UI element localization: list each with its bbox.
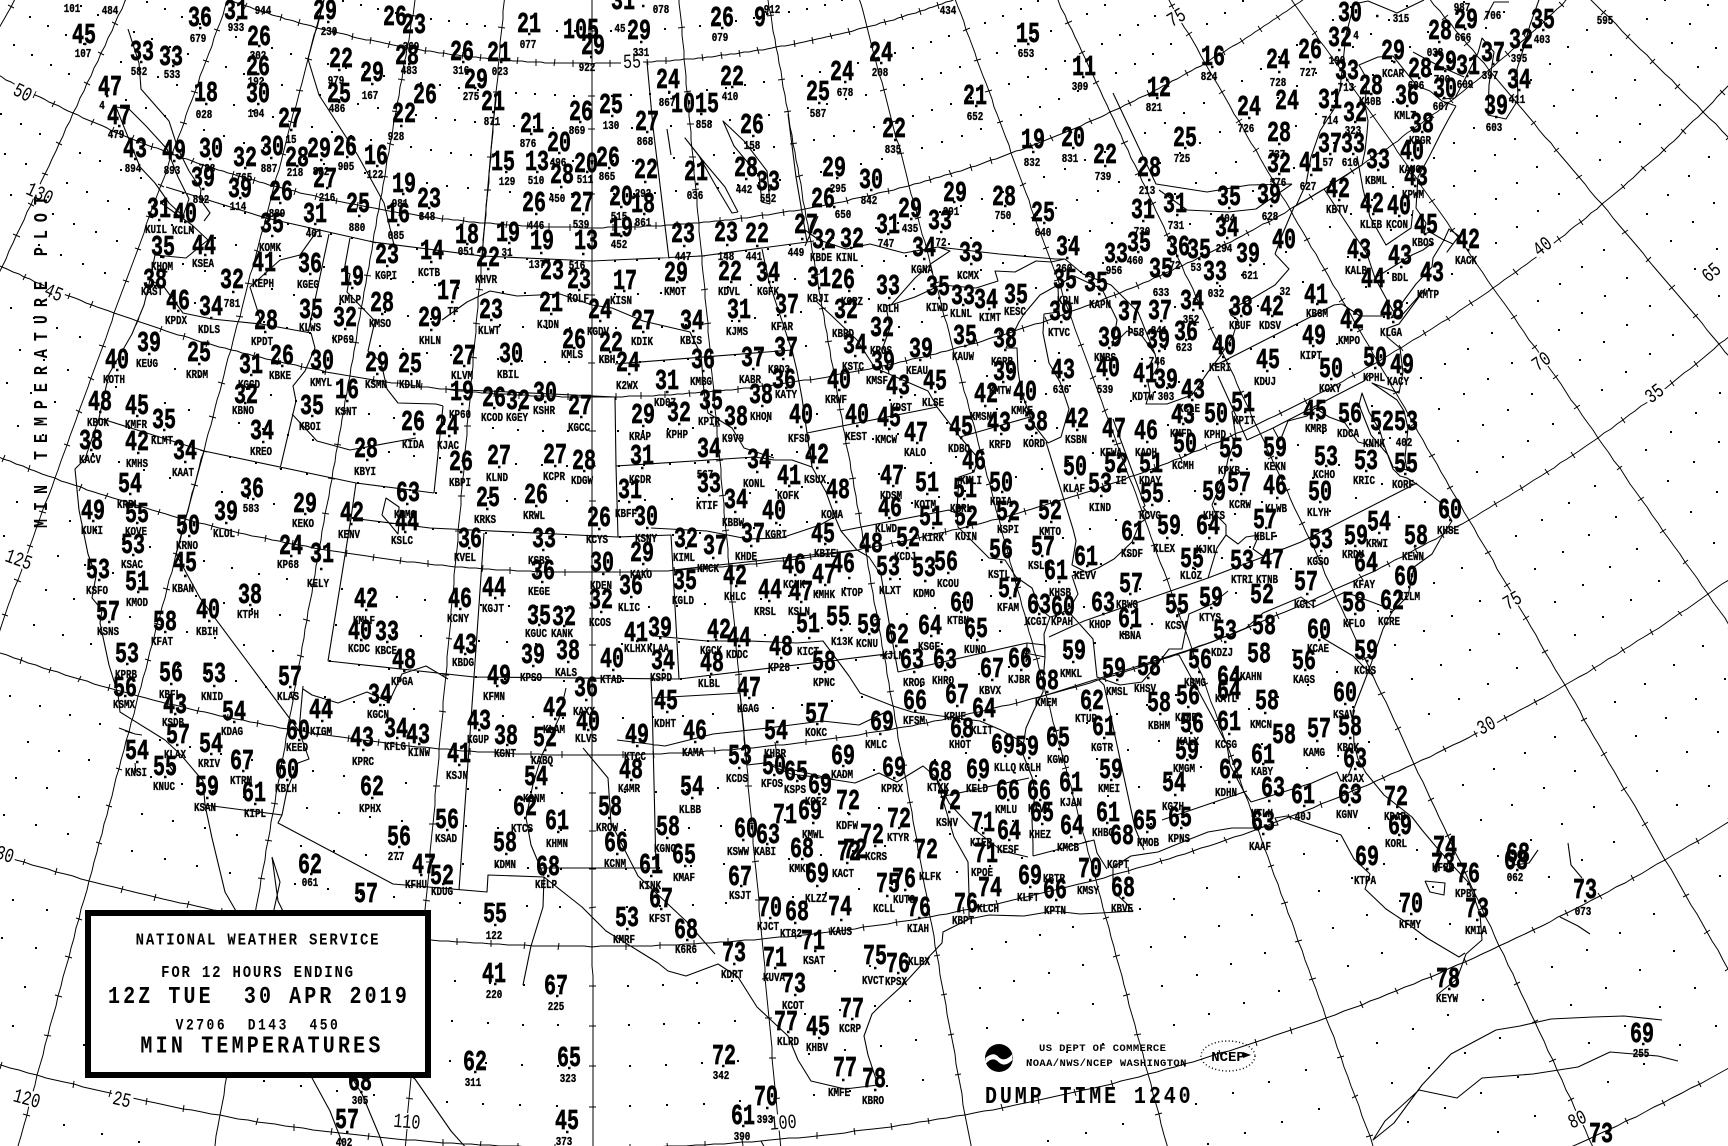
svg-text:59: 59	[1015, 732, 1039, 765]
svg-text:KMFR: KMFR	[125, 419, 148, 432]
svg-text:KVEL: KVEL	[454, 552, 476, 565]
svg-text:KTOP: KTOP	[841, 587, 863, 600]
svg-text:KGNC: KGNC	[654, 843, 677, 856]
svg-text:KIRK: KIRK	[922, 532, 945, 545]
svg-text:45: 45	[654, 686, 678, 719]
svg-text:KBPI: KBPI	[449, 477, 471, 490]
svg-text:KBNA: KBNA	[1119, 630, 1142, 643]
svg-text:KATY: KATY	[775, 389, 798, 402]
svg-text:44: 44	[482, 573, 506, 606]
svg-text:US DEPT OF COMMERCE: US DEPT OF COMMERCE	[1039, 1043, 1166, 1055]
svg-text:KMHK: KMHK	[813, 589, 836, 602]
svg-text:KMLS: KMLS	[561, 349, 584, 362]
svg-text:KHBR: KHBR	[764, 748, 787, 761]
svg-text:KORF: KORF	[1392, 479, 1414, 492]
svg-text:KBML: KBML	[1365, 175, 1387, 188]
svg-text:53: 53	[1309, 525, 1333, 558]
svg-text:441: 441	[746, 251, 763, 264]
svg-text:KLWD: KLWD	[875, 523, 897, 536]
svg-text:KDIK: KDIK	[631, 336, 654, 349]
svg-text:369: 369	[403, 41, 420, 54]
svg-text:DUMP TIME 1240: DUMP TIME 1240	[985, 1083, 1194, 1110]
svg-text:77: 77	[840, 994, 864, 1027]
svg-text:42: 42	[340, 498, 364, 531]
svg-text:16: 16	[1201, 42, 1225, 75]
svg-text:KGNT: KGNT	[494, 748, 517, 761]
svg-text:122: 122	[367, 169, 384, 182]
svg-text:49: 49	[1302, 321, 1326, 354]
svg-text:868: 868	[637, 136, 654, 149]
svg-text:KPIR: KPIR	[698, 416, 721, 429]
svg-text:53: 53	[1394, 407, 1418, 440]
svg-text:KSAT: KSAT	[803, 955, 826, 968]
svg-text:KUTS: KUTS	[893, 894, 916, 907]
svg-text:KCLM: KCLM	[172, 225, 194, 238]
svg-text:KGDV: KGDV	[587, 326, 610, 339]
svg-text:730: 730	[1134, 226, 1151, 239]
svg-text:KALX: KALX	[1177, 736, 1200, 749]
svg-text:882: 882	[313, 166, 330, 179]
svg-text:KFST: KFST	[649, 913, 672, 926]
svg-text:64: 64	[972, 694, 996, 727]
svg-text:130: 130	[603, 120, 620, 133]
svg-text:842: 842	[861, 195, 878, 208]
svg-text:KBRL: KBRL	[950, 503, 972, 516]
svg-text:43: 43	[123, 134, 147, 167]
svg-text:39: 39	[909, 334, 933, 367]
svg-text:750: 750	[995, 210, 1012, 223]
svg-text:KACK: KACK	[1455, 255, 1478, 268]
svg-text:30: 30	[590, 548, 614, 581]
svg-text:KSUX: KSUX	[804, 474, 827, 487]
svg-text:KOKC: KOKC	[805, 727, 828, 740]
svg-text:KBDE: KBDE	[810, 252, 832, 265]
svg-text:KBIE: KBIE	[814, 548, 836, 561]
svg-text:KRUE: KRUE	[944, 711, 966, 724]
svg-text:KRNO: KRNO	[176, 540, 199, 553]
svg-text:KRSL: KRSL	[754, 606, 776, 619]
svg-text:402: 402	[336, 1137, 353, 1146]
svg-text:31: 31	[310, 539, 334, 572]
svg-text:KBLH: KBLH	[275, 783, 297, 796]
svg-text:KRBL: KRBL	[117, 499, 139, 512]
svg-text:26: 26	[482, 383, 506, 416]
svg-text:KLCH: KLCH	[977, 903, 999, 916]
svg-text:KBOS: KBOS	[1412, 237, 1435, 250]
svg-text:K2WX: K2WX	[616, 380, 639, 393]
svg-text:31: 31	[807, 263, 831, 296]
svg-text:KDBQ: KDBQ	[948, 443, 971, 456]
svg-text:34: 34	[747, 445, 771, 478]
svg-text:46: 46	[166, 286, 190, 319]
svg-text:KICT: KICT	[797, 646, 820, 659]
svg-text:21: 21	[481, 87, 505, 120]
svg-text:KLWT: KLWT	[478, 325, 501, 338]
svg-text:50: 50	[176, 511, 200, 544]
svg-text:KTPH: KTPH	[237, 609, 259, 622]
svg-text:KFAM: KFAM	[997, 602, 1019, 615]
svg-text:595: 595	[1597, 15, 1614, 28]
svg-text:865: 865	[599, 171, 616, 184]
svg-text:36: 36	[298, 249, 322, 282]
svg-text:848: 848	[419, 211, 436, 224]
svg-text:KLAA: KLAA	[647, 643, 670, 656]
svg-text:KEVV: KEVV	[1074, 570, 1097, 583]
svg-text:42: 42	[1326, 174, 1350, 207]
svg-text:39: 39	[1484, 91, 1508, 124]
svg-text:KCAE: KCAE	[1307, 643, 1329, 656]
svg-text:137: 137	[529, 259, 546, 272]
svg-text:KCNU: KCNU	[856, 638, 878, 651]
svg-text:KDZJ: KDZJ	[1211, 647, 1233, 660]
svg-text:933: 933	[228, 22, 245, 35]
svg-text:67: 67	[980, 654, 1004, 687]
svg-text:KBIS: KBIS	[680, 335, 703, 348]
svg-text:KMBG: KMBG	[690, 376, 712, 389]
svg-text:55: 55	[1394, 449, 1418, 482]
svg-text:KMCK: KMCK	[697, 563, 720, 576]
svg-text:KBTV: KBTV	[1326, 204, 1349, 217]
svg-text:KHLN: KHLN	[419, 335, 441, 348]
svg-text:KPSO: KPSO	[520, 672, 543, 685]
svg-text:747: 747	[878, 238, 895, 251]
svg-text:KEUG: KEUG	[136, 358, 158, 371]
svg-text:KSPD: KSPD	[650, 672, 672, 685]
svg-text:69: 69	[1630, 1019, 1654, 1052]
svg-text:NATIONAL WEATHER SERVICE: NATIONAL WEATHER SERVICE	[136, 930, 381, 950]
svg-text:KOTH: KOTH	[103, 374, 125, 387]
svg-text:MIN TEMPERATURE PLOT: MIN TEMPERATURE PLOT	[32, 188, 53, 528]
svg-text:43: 43	[1420, 258, 1444, 291]
svg-text:KACV: KACV	[79, 454, 102, 467]
svg-text:713: 713	[1338, 82, 1355, 95]
svg-text:56: 56	[387, 822, 411, 855]
svg-text:225: 225	[548, 1001, 565, 1014]
svg-text:73: 73	[782, 969, 806, 1002]
svg-text:29: 29	[307, 134, 331, 167]
svg-text:47: 47	[904, 418, 928, 451]
svg-text:KMGM: KMGM	[1173, 763, 1195, 776]
svg-text:104: 104	[248, 108, 265, 121]
svg-text:24: 24	[616, 348, 640, 381]
svg-text:KGEG: KGEG	[297, 279, 319, 292]
svg-text:K8D3: K8D3	[768, 364, 790, 377]
svg-text:KRWF: KRWF	[825, 394, 847, 407]
svg-text:KCRZ: KCRZ	[841, 296, 863, 309]
svg-text:KLFT: KLFT	[1017, 892, 1040, 905]
svg-text:31: 31	[1163, 189, 1187, 222]
svg-text:KMKE: KMKE	[1011, 405, 1033, 418]
svg-text:078: 078	[653, 4, 670, 17]
svg-text:34: 34	[368, 680, 392, 713]
svg-text:KMRB: KMRB	[1305, 423, 1328, 436]
svg-text:KSPI: KSPI	[997, 524, 1019, 537]
svg-text:623: 623	[1176, 342, 1193, 355]
svg-text:KLWB: KLWB	[1265, 503, 1288, 516]
svg-text:KJAX: KJAX	[1342, 773, 1365, 786]
svg-text:21: 21	[963, 81, 987, 114]
svg-text:33: 33	[959, 238, 983, 271]
svg-text:552: 552	[760, 193, 777, 206]
svg-text:KOMA: KOMA	[821, 509, 844, 522]
svg-text:KLEB: KLEB	[1360, 219, 1383, 232]
svg-text:KAXX: KAXX	[573, 706, 596, 719]
svg-text:452: 452	[611, 239, 628, 252]
svg-text:28: 28	[1428, 16, 1452, 49]
svg-text:69: 69	[870, 707, 894, 740]
svg-text:KBVX: KBVX	[979, 685, 1002, 698]
svg-text:077: 077	[520, 39, 537, 52]
svg-text:KCGI: KCGI	[1025, 616, 1047, 629]
svg-text:26: 26	[524, 480, 548, 513]
svg-text:KDFW: KDFW	[836, 820, 859, 833]
svg-text:KMIA: KMIA	[1465, 925, 1488, 938]
svg-text:KOLF: KOLF	[567, 293, 589, 306]
svg-text:KLIT: KLIT	[971, 725, 994, 738]
svg-text:58: 58	[1137, 652, 1161, 685]
svg-text:727: 727	[1300, 67, 1317, 80]
svg-text:241: 241	[1151, 325, 1168, 338]
svg-text:KSJT: KSJT	[729, 890, 752, 903]
svg-text:KDSV: KDSV	[1259, 320, 1282, 333]
svg-text:678: 678	[837, 87, 854, 100]
svg-text:KBBW: KBBW	[722, 517, 745, 530]
svg-text:53: 53	[86, 555, 110, 588]
svg-text:KCYS: KCYS	[586, 534, 609, 547]
svg-text:52: 52	[1370, 407, 1394, 440]
svg-text:37: 37	[1481, 38, 1505, 71]
svg-text:KENV: KENV	[338, 529, 361, 542]
svg-text:46: 46	[1134, 416, 1158, 449]
svg-text:24: 24	[1275, 86, 1299, 119]
svg-text:KCTB: KCTB	[418, 267, 441, 280]
svg-text:061: 061	[302, 877, 319, 890]
svg-text:KANK: KANK	[551, 628, 574, 641]
svg-text:25: 25	[187, 338, 211, 371]
svg-text:KUNO: KUNO	[964, 644, 987, 657]
svg-text:832: 832	[1024, 157, 1041, 170]
svg-text:23: 23	[479, 295, 503, 328]
svg-text:KNHK: KNHK	[1363, 438, 1386, 451]
svg-text:KIML: KIML	[673, 552, 695, 565]
svg-text:KJKL: KJKL	[1196, 544, 1218, 557]
svg-text:59: 59	[1199, 583, 1223, 616]
svg-text:KBWG: KBWG	[1116, 599, 1138, 612]
svg-text:679: 679	[190, 33, 207, 46]
svg-text:894: 894	[125, 163, 142, 176]
svg-text:30: 30	[260, 132, 284, 165]
svg-text:77: 77	[833, 1053, 857, 1086]
svg-text:510: 510	[528, 175, 545, 188]
svg-text:26: 26	[269, 177, 293, 210]
svg-text:442: 442	[736, 184, 753, 197]
svg-text:KACY: KACY	[1387, 376, 1410, 389]
svg-text:036: 036	[687, 190, 704, 203]
svg-text:25: 25	[398, 349, 422, 382]
svg-text:275: 275	[463, 91, 480, 104]
svg-text:KD07: KD07	[654, 397, 676, 410]
svg-text:KAHN: KAHN	[1240, 671, 1262, 684]
svg-text:KHRO: KHRO	[932, 675, 955, 688]
svg-text:54: 54	[125, 736, 149, 769]
svg-text:42: 42	[1360, 189, 1384, 222]
svg-text:922: 922	[579, 62, 596, 75]
svg-text:51: 51	[915, 468, 939, 501]
svg-text:12: 12	[1147, 73, 1171, 106]
svg-text:KNUC: KNUC	[153, 781, 176, 794]
svg-text:KCMH: KCMH	[1172, 460, 1194, 473]
svg-text:64: 64	[918, 611, 942, 644]
svg-text:726: 726	[1238, 123, 1255, 136]
svg-text:59: 59	[1102, 654, 1126, 687]
svg-text:26: 26	[333, 132, 357, 165]
svg-text:KMTW: KMTW	[989, 385, 1012, 398]
svg-text:KJCT: KJCT	[757, 921, 780, 934]
svg-text:956: 956	[1106, 265, 1123, 278]
svg-text:45: 45	[555, 1106, 579, 1139]
svg-text:KUVA: KUVA	[763, 972, 786, 985]
svg-text:34: 34	[250, 416, 274, 449]
svg-text:KMSY: KMSY	[1077, 885, 1100, 898]
svg-text:KREO: KREO	[250, 446, 273, 459]
svg-text:40: 40	[600, 644, 624, 677]
svg-text:KOFK: KOFK	[777, 490, 800, 503]
svg-text:KEGE: KEGE	[528, 586, 550, 599]
svg-text:KBQK: KBQK	[1337, 742, 1360, 755]
svg-text:KHVR: KHVR	[475, 274, 498, 287]
svg-text:23: 23	[375, 240, 399, 273]
svg-text:640: 640	[1035, 227, 1052, 240]
svg-text:KBUF: KBUF	[1229, 320, 1251, 333]
svg-text:KNID: KNID	[201, 691, 223, 704]
svg-text:607: 607	[1433, 101, 1450, 114]
svg-text:14: 14	[420, 236, 444, 269]
svg-text:32: 32	[1279, 286, 1290, 299]
svg-text:54: 54	[1367, 507, 1391, 540]
svg-text:KLOL: KLOL	[213, 528, 235, 541]
svg-text:KALO: KALO	[904, 447, 927, 460]
svg-text:54: 54	[199, 729, 223, 762]
svg-text:30: 30	[499, 339, 523, 372]
svg-text:52: 52	[1038, 496, 1062, 529]
svg-text:KGUP: KGUP	[467, 734, 489, 747]
svg-text:35: 35	[300, 391, 324, 424]
svg-text:KSAD: KSAD	[435, 833, 457, 846]
svg-text:606: 606	[1408, 80, 1425, 93]
svg-text:KABI: KABI	[754, 846, 776, 859]
svg-text:63: 63	[1091, 588, 1115, 621]
svg-text:192: 192	[248, 76, 265, 89]
svg-text:34: 34	[199, 292, 223, 325]
svg-text:19: 19	[392, 169, 416, 202]
svg-text:KLAX: KLAX	[164, 749, 187, 762]
svg-text:KLGA: KLGA	[1380, 327, 1403, 340]
svg-text:29: 29	[898, 194, 922, 227]
svg-text:40J: 40J	[1295, 811, 1312, 824]
svg-text:31: 31	[501, 247, 512, 260]
svg-text:37: 37	[703, 531, 727, 564]
svg-text:39: 39	[1236, 239, 1260, 272]
svg-text:KUIL: KUIL	[145, 224, 167, 237]
svg-text:KBFF: KBFF	[615, 508, 637, 521]
svg-text:KSLN: KSLN	[788, 606, 810, 619]
svg-text:410: 410	[722, 91, 739, 104]
svg-text:714: 714	[1322, 115, 1339, 128]
svg-text:KSDF: KSDF	[1121, 548, 1143, 561]
svg-text:70: 70	[1399, 889, 1423, 922]
svg-text:25: 25	[806, 77, 830, 110]
svg-text:KBHM: KBHM	[1148, 720, 1170, 733]
svg-text:30: 30	[859, 165, 883, 198]
svg-text:KBGM: KBGM	[1306, 308, 1328, 321]
svg-text:53: 53	[615, 903, 639, 936]
svg-text:122: 122	[486, 930, 503, 943]
svg-text:KPHX: KPHX	[359, 803, 382, 816]
svg-text:28: 28	[354, 434, 378, 467]
svg-text:KSNS: KSNS	[97, 626, 120, 639]
svg-text:49: 49	[81, 496, 105, 529]
svg-text:73: 73	[1589, 1119, 1613, 1146]
svg-text:59: 59	[1062, 636, 1086, 669]
svg-text:867: 867	[659, 97, 676, 110]
svg-text:54: 54	[118, 469, 142, 502]
svg-text:44: 44	[309, 695, 333, 728]
svg-text:746: 746	[1149, 356, 1166, 369]
svg-text:230: 230	[321, 26, 338, 39]
svg-text:KLVS: KLVS	[575, 733, 598, 746]
svg-text:KHLC: KHLC	[724, 591, 747, 604]
svg-text:KDLN: KDLN	[399, 379, 421, 392]
svg-text:60: 60	[734, 814, 758, 847]
svg-text:22: 22	[476, 243, 500, 276]
svg-text:58: 58	[598, 792, 622, 825]
svg-text:65: 65	[1133, 806, 1157, 839]
svg-text:666: 666	[1455, 32, 1472, 45]
svg-text:085: 085	[388, 230, 405, 243]
svg-text:24: 24	[1237, 92, 1261, 125]
svg-text:533: 533	[164, 69, 181, 82]
svg-text:KBIL: KBIL	[497, 369, 519, 382]
svg-text:26: 26	[383, 2, 407, 35]
svg-text:158: 158	[744, 140, 761, 153]
svg-text:19: 19	[340, 262, 364, 295]
svg-text:KGAG: KGAG	[737, 703, 759, 716]
svg-text:KDMO: KDMO	[913, 588, 936, 601]
svg-text:435: 435	[902, 223, 919, 236]
svg-text:28: 28	[572, 446, 596, 479]
svg-text:57: 57	[278, 662, 302, 695]
svg-text:KHEZ: KHEZ	[1029, 829, 1051, 842]
svg-text:40: 40	[196, 595, 220, 628]
svg-text:KSPS: KSPS	[784, 784, 807, 797]
svg-text:KLZZ: KLZZ	[805, 893, 827, 906]
svg-text:KLHX: KLHX	[624, 643, 647, 656]
svg-text:KEYW: KEYW	[1436, 993, 1459, 1006]
svg-text:43: 43	[1051, 355, 1075, 388]
svg-text:58: 58	[1342, 588, 1366, 621]
svg-text:25: 25	[1031, 198, 1055, 231]
svg-text:76: 76	[1456, 859, 1480, 892]
svg-text:KFAT: KFAT	[151, 636, 174, 649]
svg-text:KBOK: KBOK	[87, 417, 110, 430]
svg-text:29: 29	[581, 31, 605, 64]
svg-text:42: 42	[543, 693, 567, 726]
svg-text:71: 71	[971, 808, 995, 841]
svg-text:78: 78	[1436, 964, 1460, 997]
svg-text:45: 45	[806, 1012, 830, 1045]
svg-text:KTUP: KTUP	[1075, 713, 1097, 726]
svg-text:323: 323	[560, 1073, 577, 1086]
